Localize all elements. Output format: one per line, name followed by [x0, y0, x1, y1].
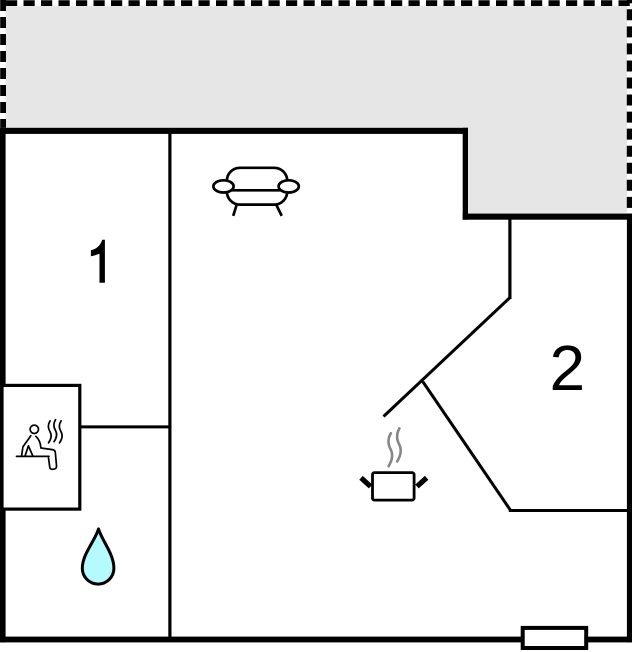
svg-text:2: 2 — [550, 332, 586, 404]
